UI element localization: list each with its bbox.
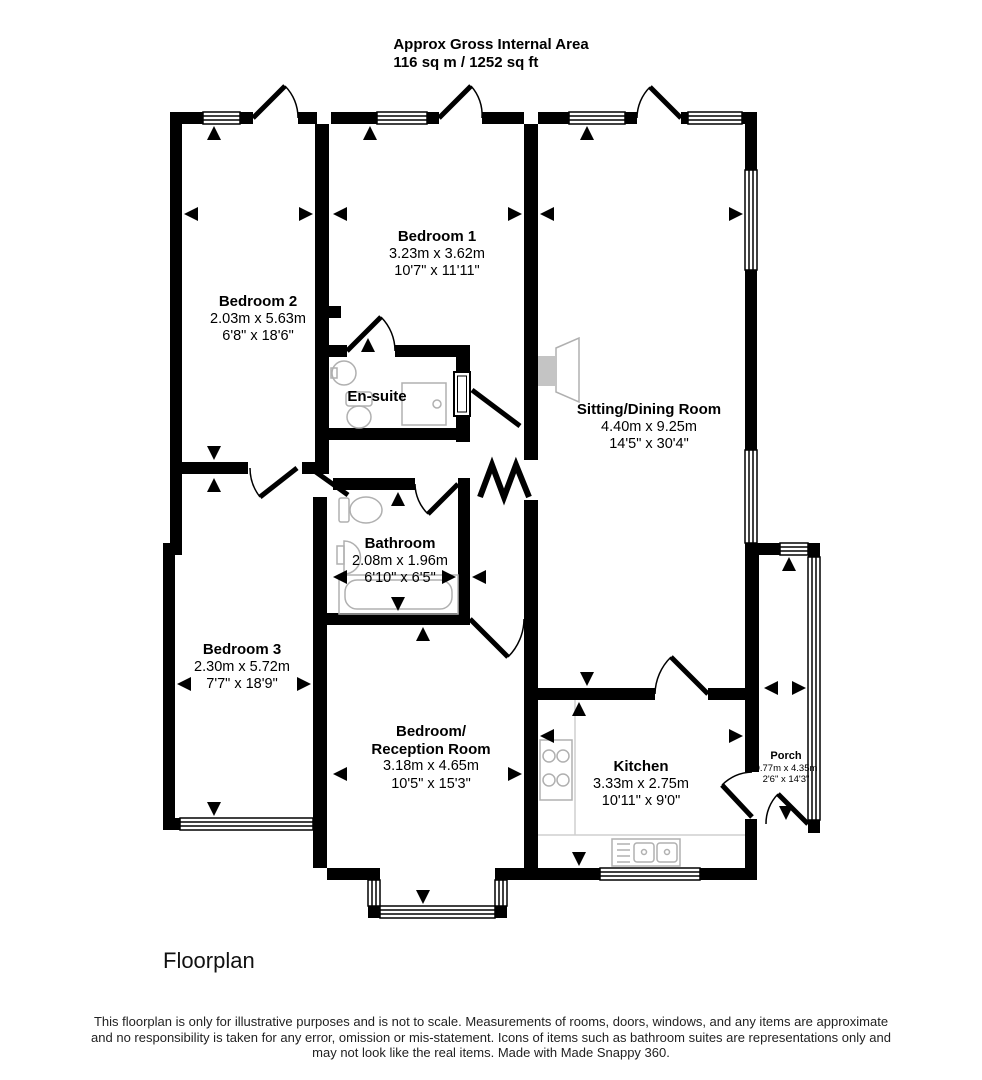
window <box>745 170 757 270</box>
shower-icon <box>402 383 446 425</box>
window <box>180 818 313 830</box>
window <box>600 868 700 880</box>
window <box>377 112 427 124</box>
room-label-kitchen: Kitchen 3.33m x 2.75m 10'11" x 9'0" <box>593 758 689 811</box>
room-name: Bedroom 3 <box>194 641 290 659</box>
measurement-arrows <box>177 126 806 904</box>
disclaimer-line3: may not look like the real items. Made w… <box>0 1045 982 1061</box>
shower-screen <box>454 372 470 416</box>
room-dim-imperial: 10'11" x 9'0" <box>593 793 689 811</box>
room-name: En-suite <box>347 388 406 406</box>
bay-window-right <box>495 880 507 906</box>
window <box>688 112 742 124</box>
bay-window-left <box>368 880 380 906</box>
window <box>569 112 625 124</box>
room-dim-imperial: 10'5" x 15'3" <box>371 776 490 794</box>
wall-opening-zigzag <box>480 465 529 497</box>
room-dim-metric: 0.77m x 4.35m <box>755 763 818 775</box>
floorplan-page: Approx Gross Internal Area 116 sq m / 12… <box>0 0 982 1080</box>
title-block: Approx Gross Internal Area 116 sq m / 12… <box>393 36 588 72</box>
room-name-line1: Bedroom/ <box>371 723 490 741</box>
room-label-bedroom1: Bedroom 1 3.23m x 3.62m 10'7" x 11'11" <box>389 228 485 281</box>
windows <box>180 112 820 918</box>
title-line1: Approx Gross Internal Area <box>393 36 588 54</box>
room-dim-metric: 2.03m x 5.63m <box>210 311 306 329</box>
window <box>780 543 808 555</box>
room-label-bedroom3: Bedroom 3 2.30m x 5.72m 7'7" x 18'9" <box>194 641 290 694</box>
window <box>745 450 757 543</box>
bay-window-bottom <box>380 906 495 918</box>
disclaimer-line2: and no responsibility is taken for any e… <box>0 1030 982 1046</box>
disclaimer: This floorplan is only for illustrative … <box>0 1014 982 1061</box>
walls <box>163 112 820 918</box>
room-label-bathroom: Bathroom 2.08m x 1.96m 6'10" x 6'5" <box>352 535 448 588</box>
room-label-bedroom2: Bedroom 2 2.03m x 5.63m 6'8" x 18'6" <box>210 293 306 346</box>
fireplace-icon <box>538 338 579 402</box>
floorplan-caption: Floorplan <box>163 948 255 974</box>
toilet-icon <box>339 497 382 523</box>
room-dim-imperial: 10'7" x 11'11" <box>389 263 485 281</box>
disclaimer-line1: This floorplan is only for illustrative … <box>0 1014 982 1030</box>
room-dim-metric: 3.23m x 3.62m <box>389 246 485 264</box>
room-label-bedroom-reception: Bedroom/ Reception Room 3.18m x 4.65m 10… <box>371 723 490 793</box>
window <box>203 112 240 124</box>
room-dim-imperial: 14'5" x 30'4" <box>577 436 721 454</box>
room-dim-imperial: 7'7" x 18'9" <box>194 676 290 694</box>
room-label-sitting-dining: Sitting/Dining Room 4.40m x 9.25m 14'5" … <box>577 401 721 454</box>
room-name: Bedroom 2 <box>210 293 306 311</box>
room-label-ensuite: En-suite <box>347 388 406 406</box>
room-name: Bedroom 1 <box>389 228 485 246</box>
room-dim-metric: 2.08m x 1.96m <box>352 553 448 571</box>
room-label-porch: Porch 0.77m x 4.35m 2'6" x 14'3" <box>755 751 818 786</box>
sink-icon <box>331 361 356 385</box>
room-name: Sitting/Dining Room <box>577 401 721 419</box>
room-dim-metric: 3.33m x 2.75m <box>593 776 689 794</box>
room-dim-metric: 3.18m x 4.65m <box>371 758 490 776</box>
room-name: Kitchen <box>593 758 689 776</box>
room-dim-imperial: 6'8" x 18'6" <box>210 328 306 346</box>
room-name: Bathroom <box>352 535 448 553</box>
hob-icon <box>540 740 572 800</box>
kitchen-sink-icon <box>612 839 680 866</box>
room-name: Porch <box>755 751 818 763</box>
room-dim-metric: 2.30m x 5.72m <box>194 659 290 677</box>
room-dim-imperial: 2'6" x 14'3" <box>755 774 818 786</box>
room-dim-metric: 4.40m x 9.25m <box>577 419 721 437</box>
floorplan-drawing <box>0 0 982 1080</box>
room-name-line2: Reception Room <box>371 741 490 759</box>
room-dim-imperial: 6'10" x 6'5" <box>352 570 448 588</box>
door-arcs <box>250 86 778 824</box>
title-line2: 116 sq m / 1252 sq ft <box>393 54 588 72</box>
